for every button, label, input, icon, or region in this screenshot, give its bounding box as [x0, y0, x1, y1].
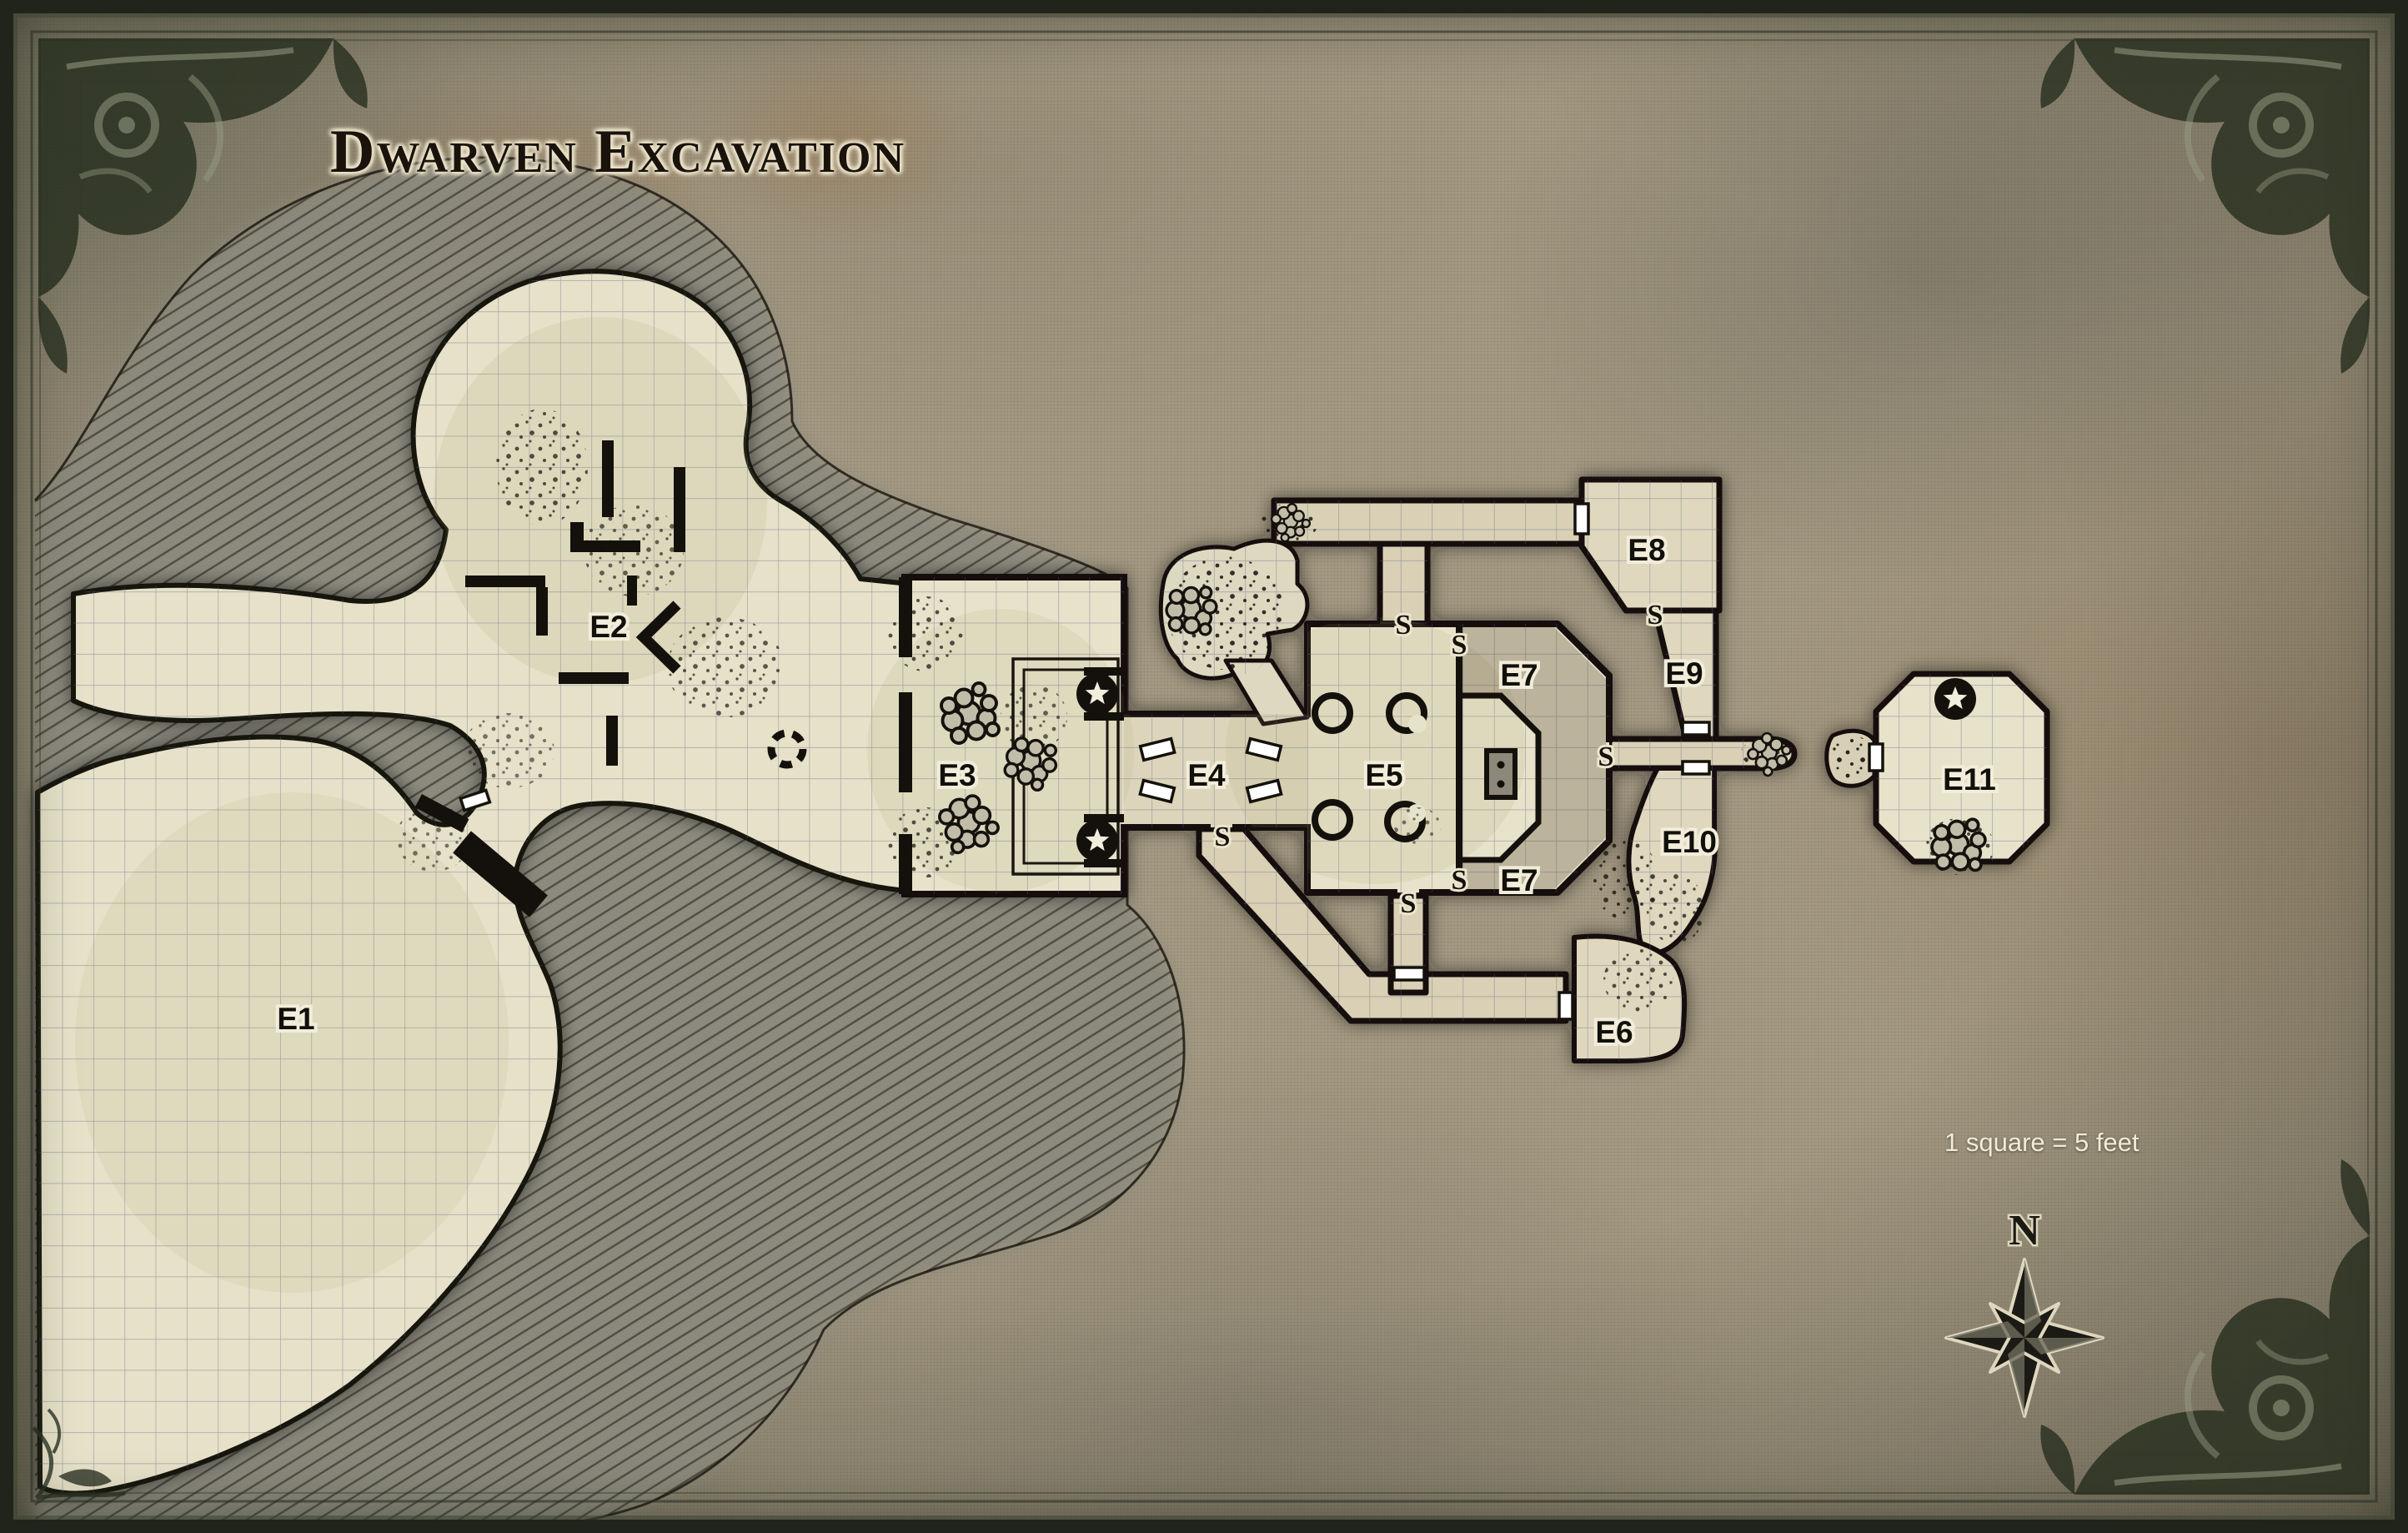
- room-label-E11: E11: [1943, 762, 1996, 797]
- room-label-E7-south: E7: [1500, 863, 1538, 897]
- door: [1869, 744, 1883, 771]
- star-marker: [1076, 673, 1118, 715]
- scale-note: 1 square = 5 feet: [1944, 1128, 2140, 1158]
- room-label-E7-north: E7: [1500, 658, 1538, 692]
- broken-pillar-gap: [1408, 715, 1427, 733]
- door: [1559, 993, 1573, 1019]
- door: [1683, 722, 1709, 735]
- room-label-E3: E3: [938, 758, 976, 792]
- secret-door-marker: S: [1396, 610, 1412, 641]
- secret-door-marker: S: [1598, 741, 1614, 772]
- secret-door-marker: S: [1648, 600, 1663, 631]
- room-label-E1: E1: [277, 1002, 314, 1036]
- corner-ornament-bottom-right: [2040, 1159, 2370, 1495]
- secret-door-marker: S: [1452, 630, 1467, 661]
- room-label-E4: E4: [1187, 758, 1226, 792]
- door: [1683, 761, 1709, 774]
- door: [1575, 504, 1588, 534]
- map-title: Dwarven Excavation: [330, 117, 906, 188]
- star-marker: [1934, 678, 1976, 720]
- secret-door-marker: S: [1452, 865, 1467, 896]
- room-label-E9: E9: [1665, 656, 1703, 691]
- room-label-E8: E8: [1628, 533, 1665, 567]
- room-label-E6: E6: [1595, 1015, 1633, 1049]
- compass-rose: N: [1946, 1207, 2103, 1416]
- secret-door-marker: S: [1401, 888, 1417, 919]
- compass-north-label: N: [2009, 1207, 2040, 1254]
- star-marker: [1076, 820, 1118, 862]
- room-label-E5: E5: [1365, 758, 1402, 792]
- dungeon-map-page: S S S S S S S E1 E2 E3 E4 E5 E6 E7 E7 E8…: [0, 0, 2408, 1533]
- room-label-E10: E10: [1662, 825, 1717, 859]
- dungeon-map: S S S S S S S E1 E2 E3 E4 E5 E6 E7 E7 E8…: [0, 0, 2408, 1533]
- secret-door-marker: S: [1215, 822, 1231, 852]
- door: [1394, 968, 1424, 980]
- corner-ornament-top-right: [2040, 38, 2370, 374]
- room-label-E2: E2: [589, 610, 627, 644]
